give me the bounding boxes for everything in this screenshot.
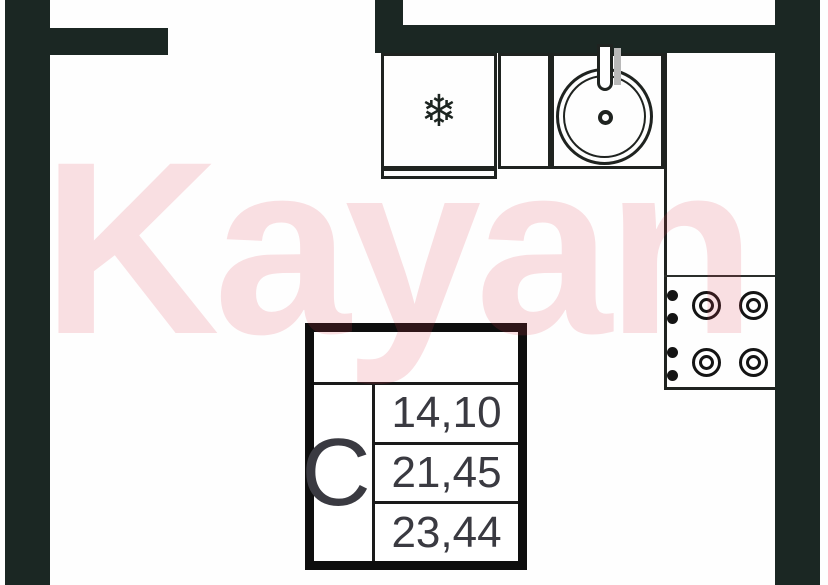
snowflake-icon: ❄	[410, 84, 468, 140]
counter-segment	[498, 53, 551, 169]
unit-card-body: С 14,10 21,45 23,44	[314, 385, 518, 561]
stove-burner-center	[746, 298, 761, 313]
wall-left	[5, 0, 50, 585]
unit-area-row: 14,10	[375, 385, 518, 442]
stove-divider-line	[664, 275, 775, 277]
sink-drain-icon	[598, 110, 613, 125]
stove-burner-icon	[692, 291, 721, 320]
stove-burner-icon	[739, 291, 768, 320]
wall-right	[775, 0, 820, 585]
unit-card-header-strip	[314, 332, 518, 385]
stove-knob-icon	[667, 347, 678, 358]
unit-type-cell: С	[314, 385, 375, 561]
unit-type-letter: С	[301, 425, 370, 521]
unit-area-rows: 14,10 21,45 23,44	[375, 385, 518, 561]
sink-faucet-shadow	[614, 48, 621, 85]
counter-fridge-panel	[381, 168, 497, 179]
wall-kitchen-corner	[375, 0, 403, 27]
stove-burner-center	[746, 355, 761, 370]
stove-knob-icon	[667, 370, 678, 381]
sink-faucet-icon	[597, 44, 613, 91]
stove-burner-icon	[692, 348, 721, 377]
unit-area-row: 21,45	[375, 442, 518, 502]
floorplan-canvas: ❄ С 14,10 21,45 23,44 Kayan	[0, 0, 828, 585]
unit-area-row: 23,44	[375, 501, 518, 561]
stove-knob-icon	[667, 290, 678, 301]
stove-burner-icon	[739, 348, 768, 377]
unit-spec-card: С 14,10 21,45 23,44	[305, 323, 527, 570]
stove-knob-icon	[667, 313, 678, 324]
wall-entry-stub	[50, 28, 168, 55]
stove-burner-center	[699, 355, 714, 370]
counter-right-column	[664, 53, 775, 390]
stove-burner-center	[699, 298, 714, 313]
wall-kitchen-top	[375, 25, 775, 53]
